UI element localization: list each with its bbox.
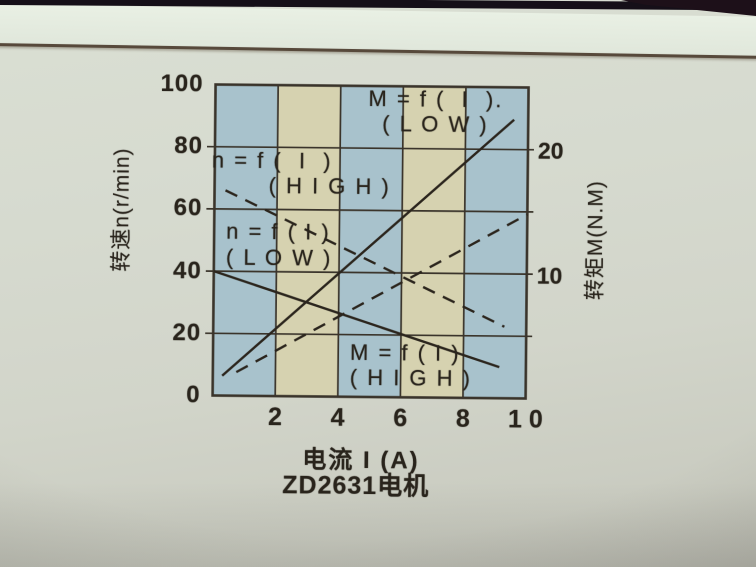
curve-label-n-low-line2: ( L O W ) — [226, 245, 333, 272]
y-left-tick-label: 20 — [129, 318, 201, 347]
y-left-tick-label: 60 — [130, 194, 202, 223]
y-left-tick-label: 80 — [131, 132, 203, 161]
curve-label-m-high-line1: M = f ( I ) — [350, 340, 461, 367]
y-left-tick-label: 0 — [128, 381, 200, 410]
y-right-tick-label: 20 — [538, 138, 582, 165]
chart-caption: ZD2631电机 — [193, 464, 519, 503]
x-tick-label: 1 0 — [503, 405, 547, 434]
curve-label-m-high-line2: ( H I G H ) — [350, 365, 472, 392]
curve-label-m-low-line1: M = f ( I ). — [368, 86, 503, 113]
curve-label-n-high-line1: n = f ( I ) — [212, 147, 333, 174]
y-axis-right-label: 转矩M(N.M) — [577, 60, 606, 420]
curve-label-m-low-line2: ( L O W ) — [382, 111, 489, 138]
curve-label-n-low-line1: n = f ( I ) — [226, 219, 331, 246]
x-tick-label: 4 — [315, 403, 359, 432]
x-tick-label: 2 — [253, 403, 297, 432]
motor-characteristics-chart: 转速n(r/min) 转矩M(N.M) 电流 I (A) ZD2631电机 M … — [0, 0, 756, 567]
book-page-photo: 转速n(r/min) 转矩M(N.M) 电流 I (A) ZD2631电机 M … — [0, 0, 756, 567]
curve-label-n-high-line2: ( H I G H ) — [268, 173, 390, 200]
y-left-tick-label: 100 — [131, 70, 203, 99]
y-left-tick-label: 40 — [130, 256, 202, 285]
x-tick-label: 8 — [441, 405, 485, 434]
x-tick-label: 6 — [378, 404, 422, 433]
y-right-tick-label: 10 — [537, 262, 581, 289]
